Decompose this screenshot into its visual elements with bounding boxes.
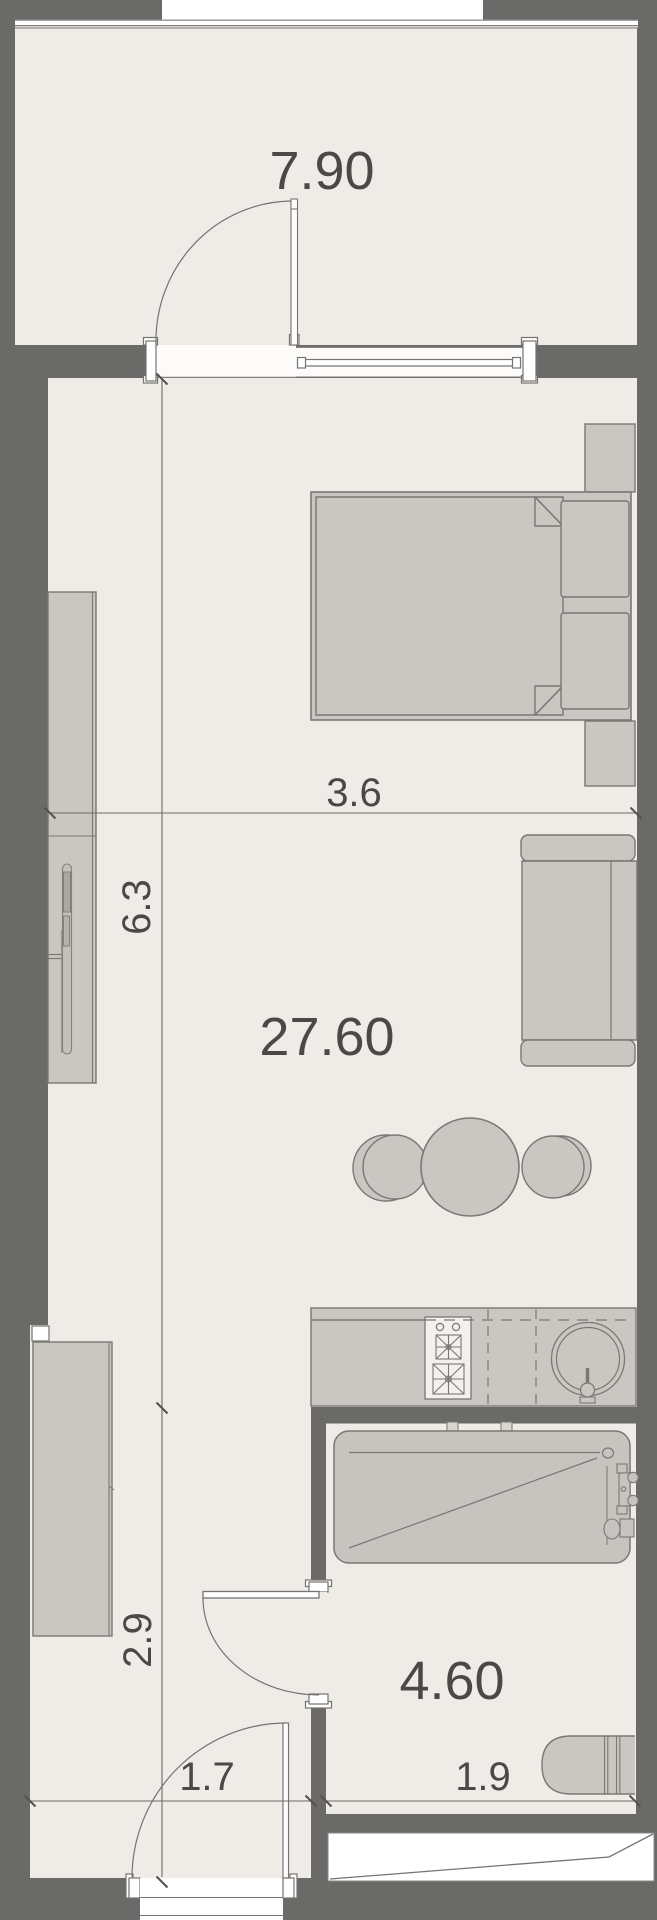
svg-text:6.3: 6.3 [115,879,159,935]
svg-text:2.9: 2.9 [116,1612,160,1668]
svg-text:27.60: 27.60 [259,1007,394,1067]
svg-text:4.60: 4.60 [399,1651,504,1711]
svg-text:3.6: 3.6 [326,771,382,815]
svg-text:7.90: 7.90 [269,141,374,201]
svg-text:1.9: 1.9 [455,1755,511,1799]
svg-text:1.7: 1.7 [179,1755,235,1799]
